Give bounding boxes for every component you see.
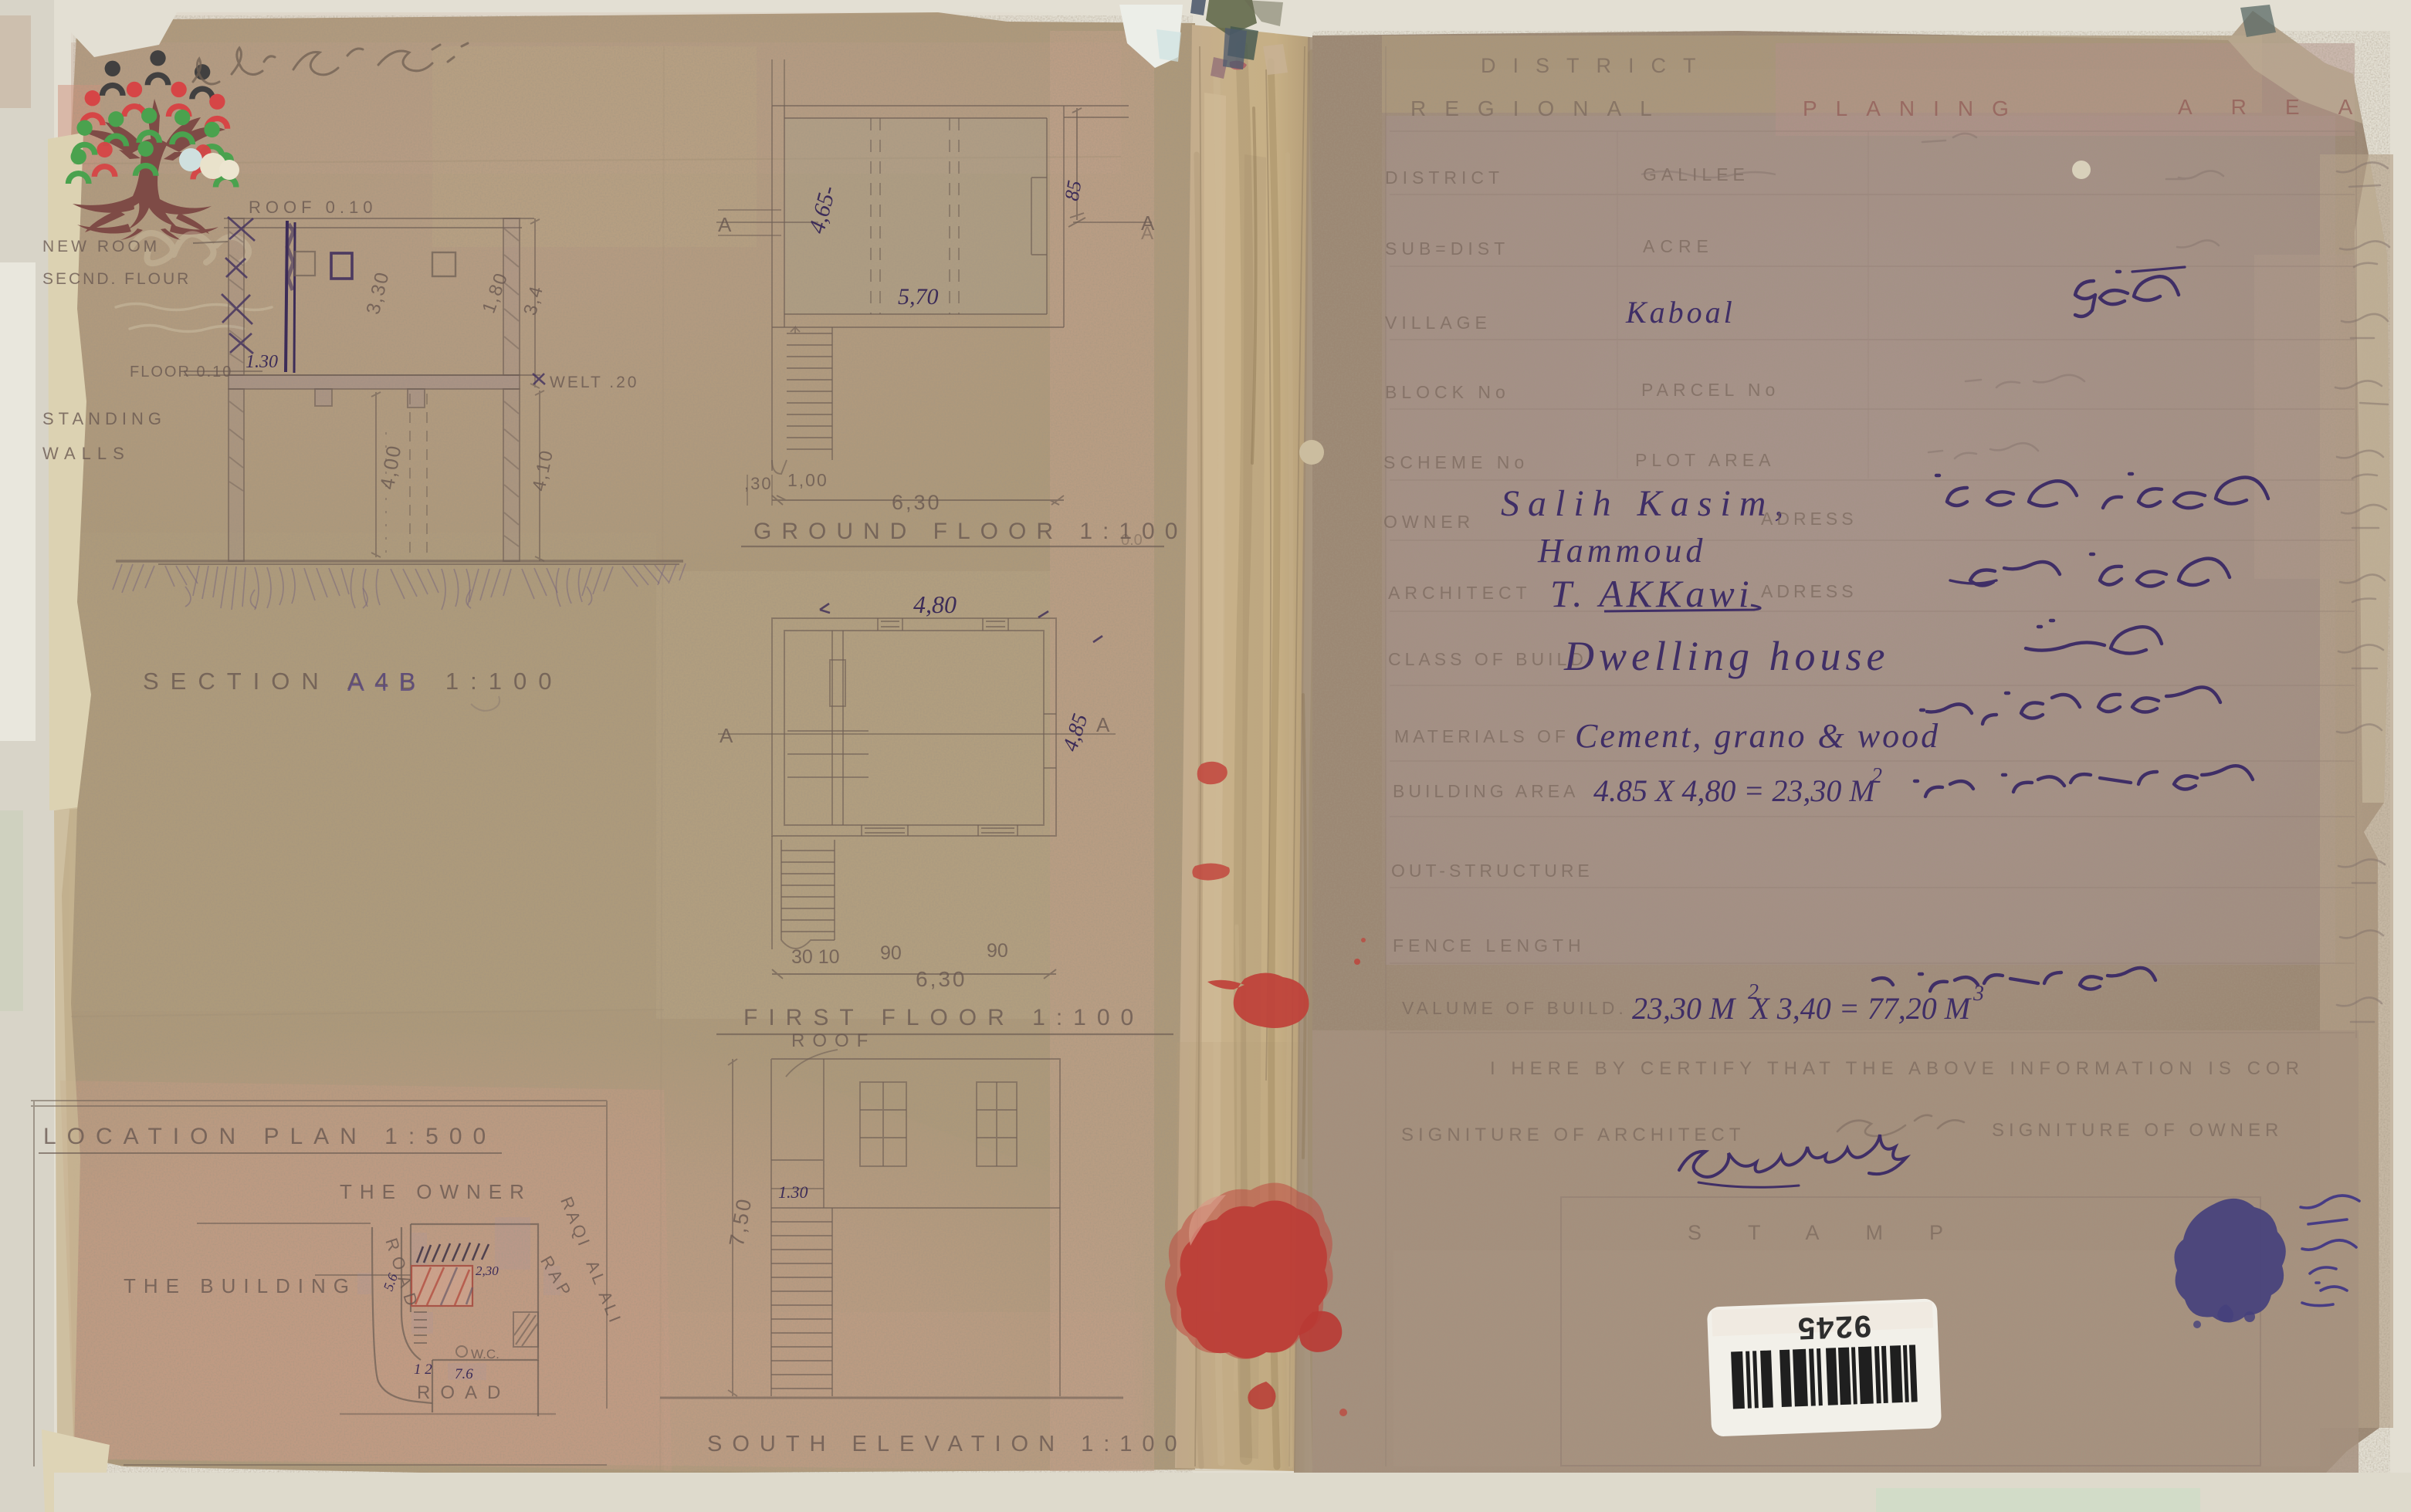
svg-text:SIGNITURE OF ARCHITECT: SIGNITURE OF ARCHITECT: [1401, 1125, 1745, 1145]
svg-text:Dwelling house: Dwelling house: [1563, 633, 1889, 679]
svg-text:6,30: 6,30: [916, 967, 967, 991]
svg-text:VILLAGE: VILLAGE: [1385, 313, 1492, 333]
svg-text:1,00: 1,00: [787, 470, 828, 490]
svg-text:90: 90: [880, 942, 902, 964]
svg-text:30 10: 30 10: [791, 946, 840, 968]
svg-text:I HERE BY CERTIFY THAT THE ABO: I HERE BY CERTIFY THAT THE ABOVE INFORMA…: [1490, 1058, 2304, 1079]
svg-text:SCHEME No: SCHEME No: [1383, 452, 1529, 472]
svg-text:ROAD: ROAD: [417, 1382, 510, 1403]
svg-text:THE BUILDING: THE BUILDING: [124, 1274, 357, 1297]
svg-text:A: A: [1141, 211, 1155, 235]
svg-text:Salih Kasim,: Salih Kasim,: [1501, 483, 1792, 524]
svg-text:ACRE: ACRE: [1643, 236, 1714, 256]
svg-text:A: A: [1096, 713, 1110, 736]
svg-text:DISTRICT: DISTRICT: [1481, 54, 1713, 77]
svg-text:STAMP: STAMP: [1688, 1221, 1989, 1244]
svg-text:NEW ROOM: NEW ROOM: [42, 238, 160, 255]
svg-text:4.85 X 4,80 = 23,30 M: 4.85 X 4,80 = 23,30 M: [1593, 773, 1877, 808]
svg-text:1.30: 1.30: [246, 352, 278, 372]
svg-text:Hammoud: Hammoud: [1537, 532, 1706, 570]
svg-text:A4B: A4B: [347, 668, 425, 696]
svg-text:4,80: 4,80: [913, 590, 957, 618]
svg-text:7.6: 7.6: [455, 1366, 473, 1382]
svg-text:OWNER: OWNER: [1383, 512, 1475, 532]
svg-text:1.30: 1.30: [778, 1182, 808, 1202]
svg-text:ROOF: ROOF: [791, 1030, 875, 1051]
svg-text:23,30 M X 3,40 = 77,20 M: 23,30 M X 3,40 = 77,20 M: [1632, 991, 1972, 1026]
svg-text:Kaboal: Kaboal: [1625, 295, 1735, 330]
svg-text:ADRESS: ADRESS: [1761, 509, 1857, 529]
svg-text:5,70: 5,70: [898, 284, 939, 310]
svg-text:FLOOR 0.10: FLOOR 0.10: [130, 364, 232, 381]
svg-text:2: 2: [1748, 980, 1759, 1004]
svg-text:85: 85: [1060, 179, 1085, 203]
svg-text:OUT-STRUCTURE: OUT-STRUCTURE: [1391, 861, 1593, 881]
svg-text:9245: 9245: [1796, 1309, 1872, 1346]
svg-text:,30: ,30: [744, 474, 773, 493]
svg-text:ADRESS: ADRESS: [1761, 581, 1857, 601]
svg-text:REGIONAL: REGIONAL: [1410, 96, 1671, 120]
svg-text:GROUND FLOOR 1:100: GROUND FLOOR 1:100: [753, 519, 1187, 544]
svg-text:LOCATION PLAN 1:500: LOCATION PLAN 1:500: [43, 1124, 496, 1149]
svg-text:MATERIALS OF: MATERIALS OF: [1394, 726, 1570, 746]
svg-text:PARCEL No: PARCEL No: [1641, 380, 1779, 400]
svg-text:A: A: [718, 213, 732, 236]
svg-text:WALLS: WALLS: [42, 444, 130, 463]
svg-text:FIRST FLOOR 1:100: FIRST FLOOR 1:100: [743, 1005, 1144, 1030]
svg-text:AREA: AREA: [2178, 95, 2391, 119]
svg-text:DISTRICT: DISTRICT: [1385, 167, 1504, 188]
svg-text:T. AKKawi: T. AKKawi: [1550, 572, 1753, 615]
svg-text:Cement, grano & wood: Cement, grano & wood: [1575, 717, 1940, 755]
svg-text:BUILDING AREA: BUILDING AREA: [1393, 781, 1579, 801]
svg-text:ROOF 0.10: ROOF 0.10: [249, 198, 377, 217]
svg-text:A: A: [720, 724, 733, 747]
svg-text:90: 90: [987, 940, 1008, 962]
svg-text:ARCHITECT: ARCHITECT: [1388, 583, 1532, 603]
svg-text:6,30: 6,30: [892, 491, 942, 514]
svg-text:2: 2: [1871, 764, 1882, 788]
svg-text:THE OWNER: THE OWNER: [340, 1180, 532, 1203]
svg-text:FENCE LENGTH: FENCE LENGTH: [1393, 935, 1586, 956]
svg-text:WELT .20: WELT .20: [550, 374, 638, 391]
svg-text:PLANING: PLANING: [1803, 96, 2027, 120]
svg-text:VALUME OF BUILD.: VALUME OF BUILD.: [1402, 998, 1627, 1018]
svg-text:SIGNITURE OF OWNER: SIGNITURE OF OWNER: [1992, 1120, 2283, 1141]
svg-text:SUB=DIST: SUB=DIST: [1385, 238, 1509, 259]
svg-text:BLOCK No: BLOCK No: [1385, 382, 1510, 402]
svg-text:STANDING: STANDING: [42, 409, 166, 428]
svg-text:2,30: 2,30: [476, 1263, 499, 1278]
svg-text:W.C.: W.C.: [471, 1347, 499, 1361]
svg-text:1 2: 1 2: [414, 1361, 432, 1378]
svg-text:PLOT AREA: PLOT AREA: [1635, 450, 1775, 470]
svg-text:SOUTH ELEVATION 1:100: SOUTH ELEVATION 1:100: [707, 1432, 1187, 1456]
svg-text:SECND. FLOUR: SECND. FLOUR: [42, 270, 191, 288]
